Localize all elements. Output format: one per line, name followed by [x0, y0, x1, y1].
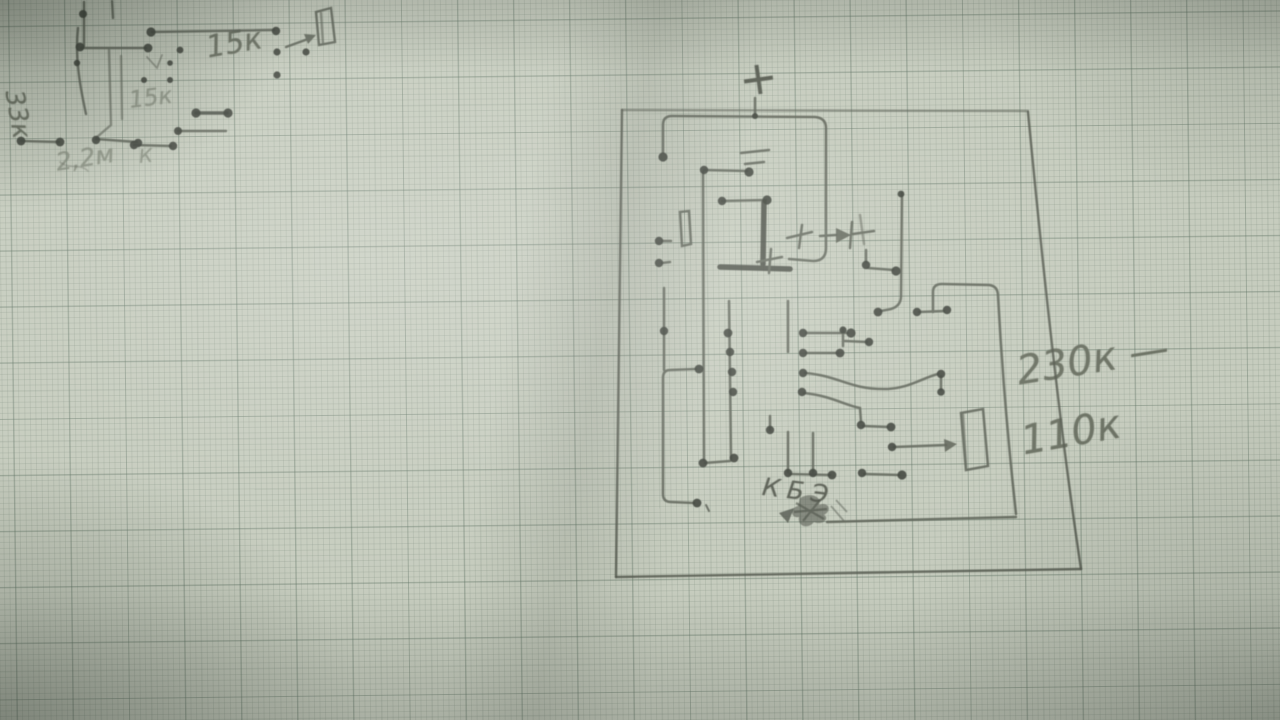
pcb-copper-traces	[662, 98, 1016, 522]
diode-arrow-icon	[836, 228, 851, 243]
equals-mark	[741, 150, 769, 153]
pcb-board-outline	[616, 110, 1081, 577]
small-loop-symbol	[680, 211, 691, 246]
arrow-to-component-icon	[944, 439, 957, 452]
pcb-solder-pads	[655, 113, 951, 507]
photo-circuit-sketch: 33к 15к 15к 2,2м К + КБЭ 230к — 110к	[0, 0, 1280, 720]
component-box-symbol	[316, 8, 335, 45]
top-left-circuit-sketch	[21, 0, 335, 171]
pencil-sketch-layer	[0, 0, 1280, 720]
